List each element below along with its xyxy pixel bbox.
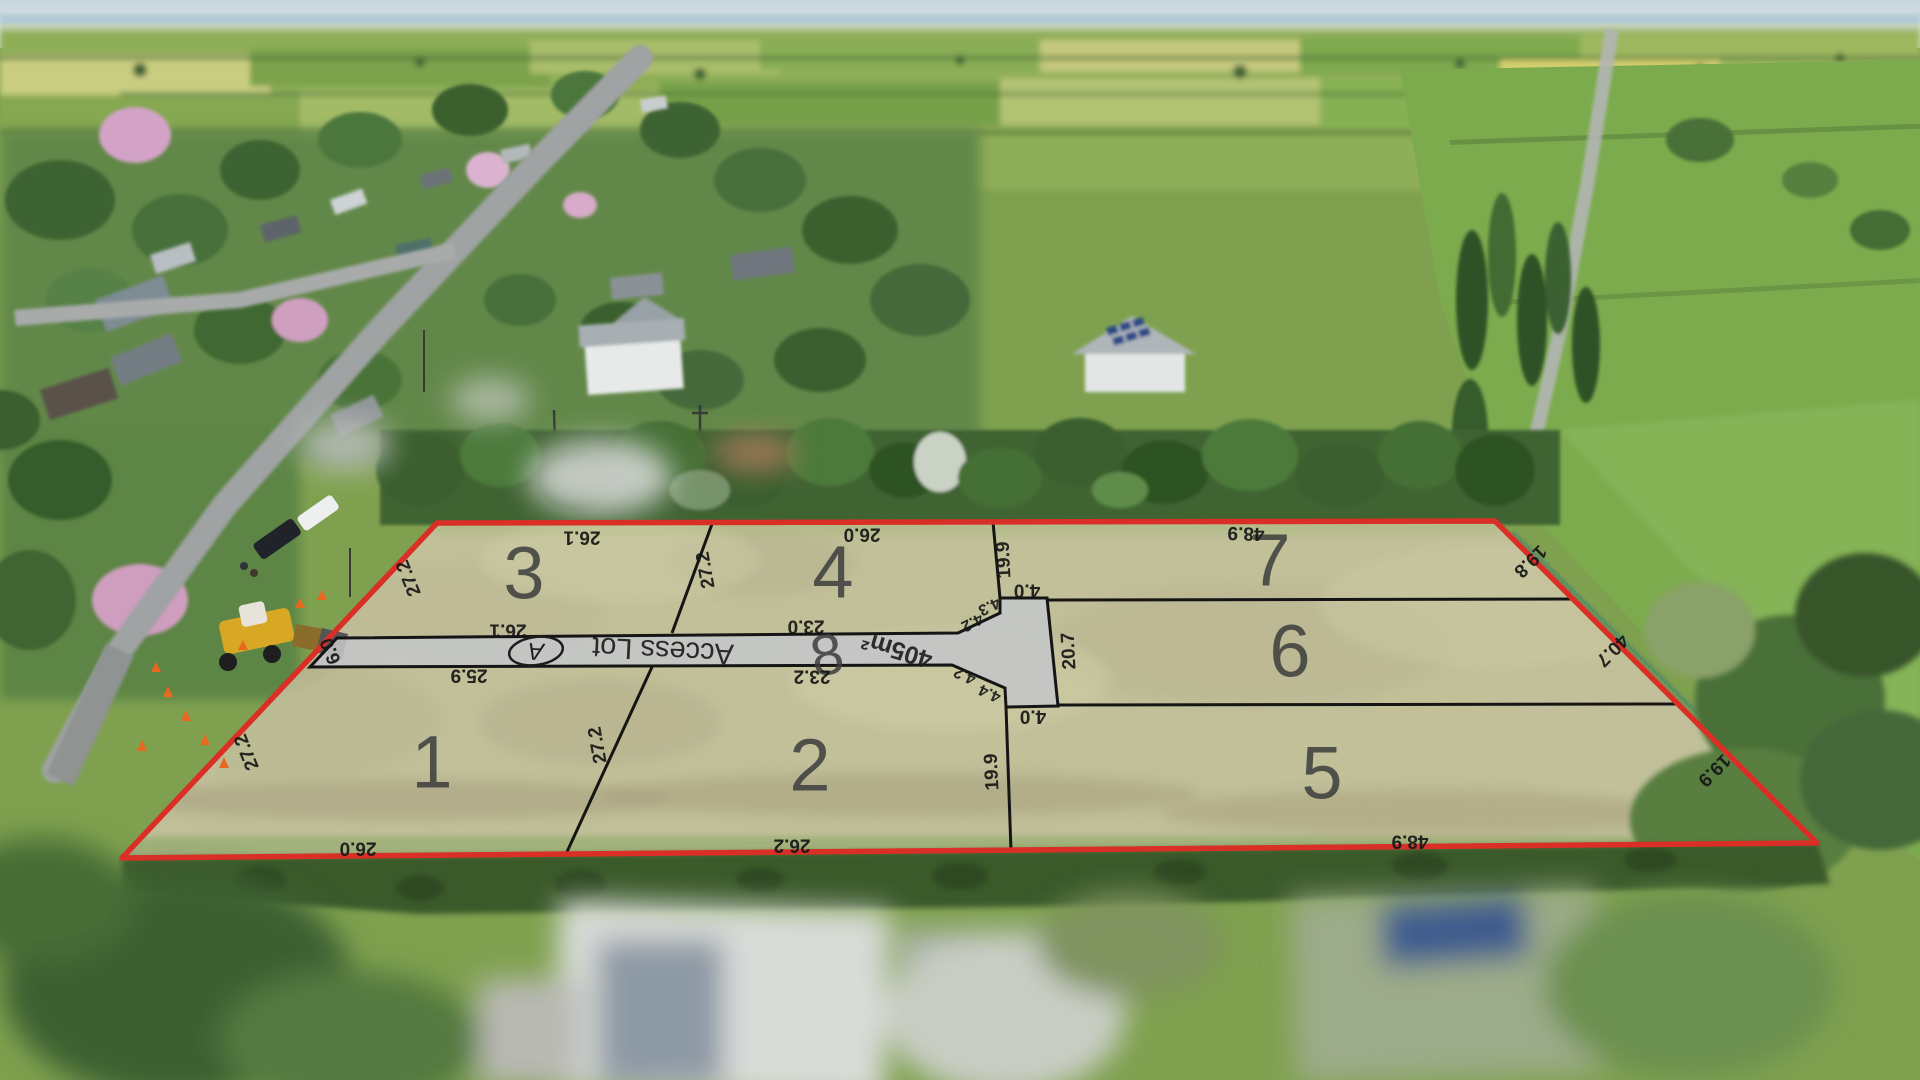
- dim-lot3-bottom: 26.1: [489, 620, 526, 641]
- dim-lot1-top: 25.9: [451, 665, 488, 686]
- dim-lot1-bottom: 26.0: [340, 838, 377, 859]
- foreground: [0, 838, 1835, 1080]
- dim-lot6-left: 20.7: [1058, 632, 1081, 670]
- dim-lot2-bottom: 26.2: [774, 835, 811, 856]
- person: [240, 562, 248, 570]
- white-car: [296, 494, 340, 532]
- lot-2-number: 2: [789, 724, 830, 807]
- dim-lot5-bottom: 48.9: [1392, 831, 1429, 852]
- person: [250, 569, 258, 577]
- lot-1-number: 1: [411, 721, 452, 804]
- dim-lot4-bottom: 23.0: [788, 616, 825, 637]
- dim-lot2-top: 23.2: [794, 666, 831, 687]
- lot-3-number: 3: [503, 532, 544, 615]
- dim-lot4-right: 19.9: [993, 541, 1016, 579]
- dim-access-block-top: 4.0: [1014, 580, 1040, 601]
- dim-lot4-top: 26.0: [844, 524, 881, 545]
- dim-lot7-top: 48.9: [1227, 522, 1265, 544]
- dim-lot3-top: 26.1: [563, 527, 600, 548]
- dim-access-block-bottom: 4.0: [1020, 706, 1046, 727]
- lot-5-number: 5: [1301, 732, 1342, 815]
- access-badge-letter: A: [527, 637, 546, 665]
- dim-lot2-right: 19.9: [981, 753, 1004, 791]
- solar-house: [1072, 316, 1196, 392]
- lot-6-number: 6: [1269, 610, 1310, 693]
- site-paddock: [122, 518, 1818, 858]
- aerial-subdivision-photo: 1 2 3 4 5 6 7 8 A Access Lot 405m² 26.1 …: [0, 0, 1920, 1080]
